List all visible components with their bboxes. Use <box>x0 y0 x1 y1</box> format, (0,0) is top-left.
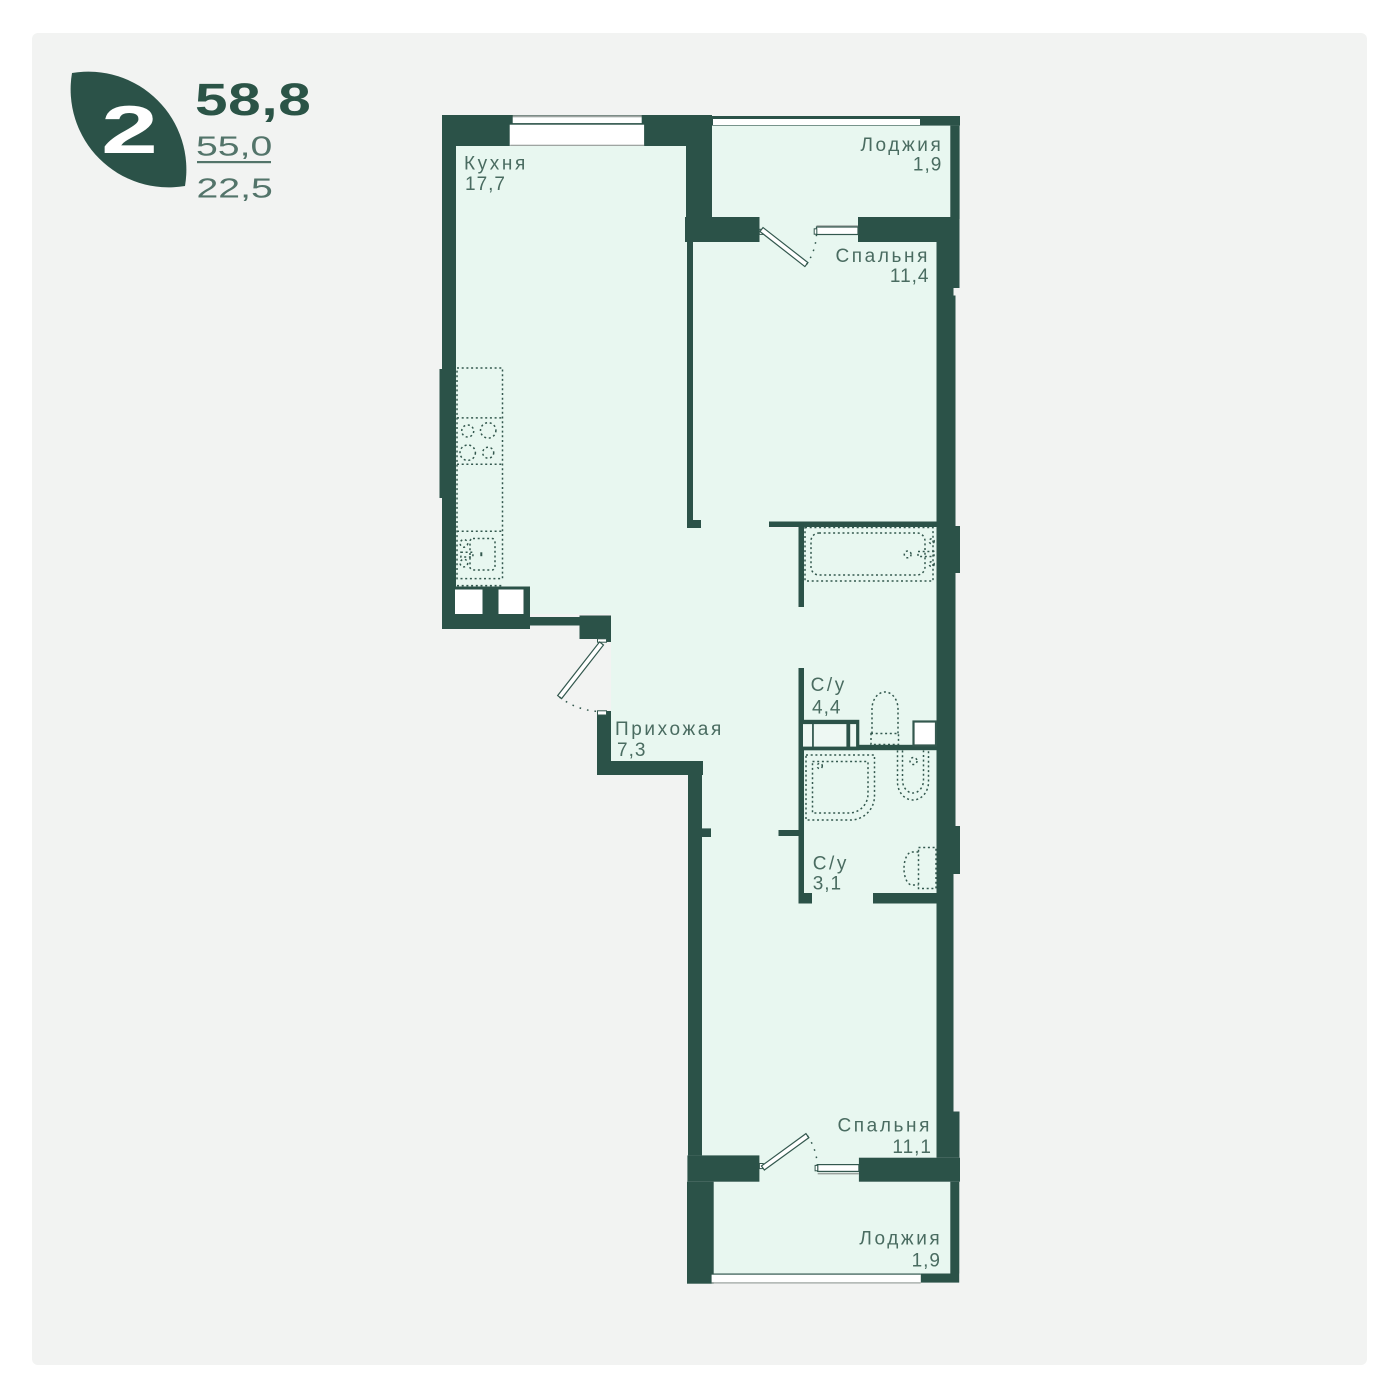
svg-text:Прихожая: Прихожая <box>615 719 724 740</box>
svg-text:55,0: 55,0 <box>196 131 272 162</box>
svg-text:1,9: 1,9 <box>912 1250 941 1271</box>
svg-text:Лоджия: Лоджия <box>860 135 943 156</box>
svg-text:Спальня: Спальня <box>835 246 930 267</box>
svg-text:2: 2 <box>101 93 158 168</box>
svg-text:С/у: С/у <box>813 854 849 875</box>
svg-text:11,1: 11,1 <box>892 1137 932 1158</box>
svg-text:Спальня: Спальня <box>837 1115 932 1136</box>
svg-text:58,8: 58,8 <box>195 75 311 125</box>
svg-text:22,5: 22,5 <box>197 173 273 204</box>
svg-text:Лоджия: Лоджия <box>859 1229 942 1250</box>
svg-text:3,1: 3,1 <box>813 874 842 895</box>
svg-text:1,9: 1,9 <box>913 154 942 175</box>
svg-text:7,3: 7,3 <box>617 740 646 761</box>
svg-text:11,4: 11,4 <box>890 266 930 287</box>
svg-text:С/у: С/у <box>811 675 847 696</box>
svg-text:Кухня: Кухня <box>464 154 528 175</box>
svg-text:17,7: 17,7 <box>465 174 506 195</box>
svg-text:4,4: 4,4 <box>812 698 841 719</box>
